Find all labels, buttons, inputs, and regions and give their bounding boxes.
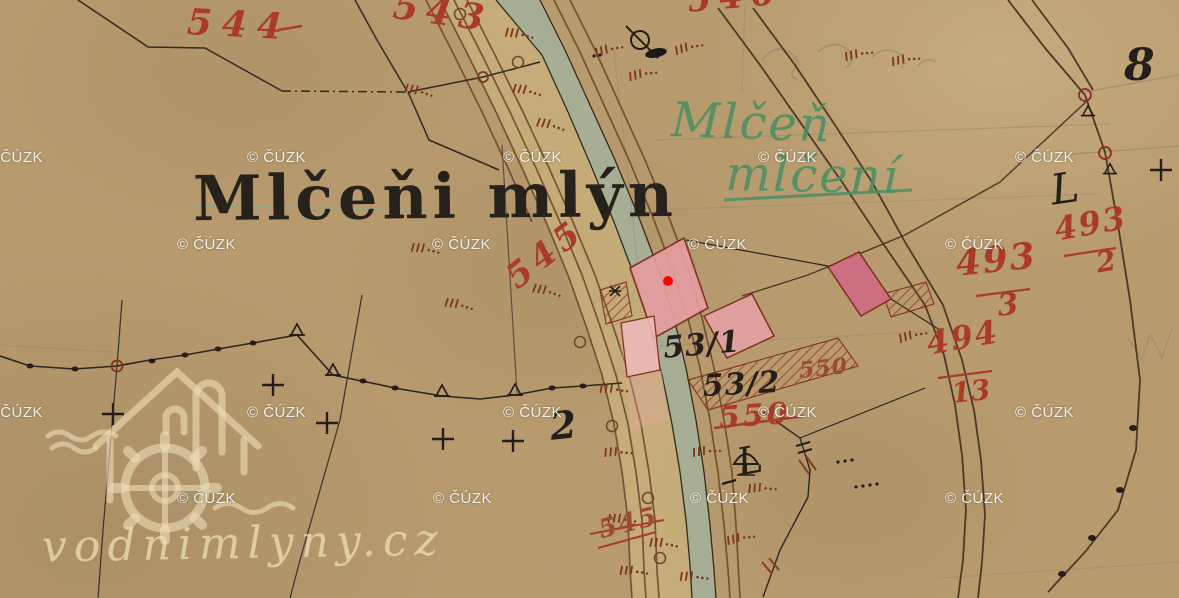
- building-annex: [621, 316, 660, 377]
- mill-location-marker[interactable]: [663, 276, 673, 286]
- vodnimlyny-logo-text: vodnimlyny.cz: [42, 514, 446, 572]
- map-viewport[interactable]: Mlčeňi mlýn 5445435465454932493349413550…: [0, 0, 1179, 598]
- building-hatch-c: [600, 282, 632, 324]
- cadastral-map-graphics: [0, 0, 1179, 598]
